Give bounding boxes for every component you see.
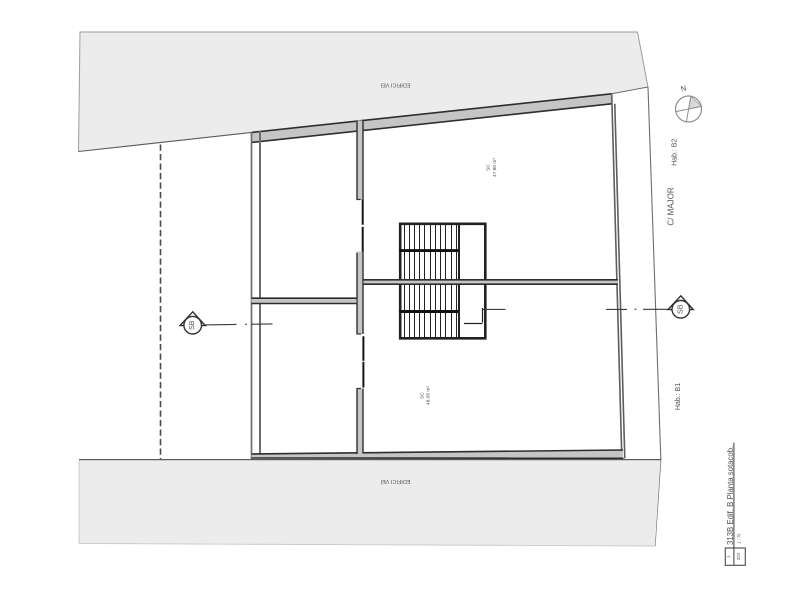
svg-text:C/ MAJOR: C/ MAJOR	[666, 187, 675, 225]
svg-text:1 : 75: 1 : 75	[737, 533, 742, 544]
svg-text:SB: SB	[677, 304, 684, 314]
svg-text:47,80 m²: 47,80 m²	[492, 158, 498, 177]
svg-text:323: 323	[736, 552, 741, 560]
svg-text:SC: SC	[486, 164, 492, 171]
svg-text:48,05 m²: 48,05 m²	[426, 386, 432, 405]
svg-text:EDIFICI VEÍ: EDIFICI VEÍ	[380, 478, 410, 485]
svg-text:SC: SC	[420, 392, 426, 399]
svg-text:EDIFICI VEÍ: EDIFICI VEÍ	[380, 82, 410, 89]
svg-text:SB: SB	[189, 320, 196, 330]
svg-text:Hab.: B2: Hab.: B2	[671, 139, 678, 166]
svg-text:Hab.: B1: Hab.: B1	[675, 383, 682, 410]
svg-text:313B Edif. B Planta sotacob.: 313B Edif. B Planta sotacob.	[726, 446, 735, 545]
